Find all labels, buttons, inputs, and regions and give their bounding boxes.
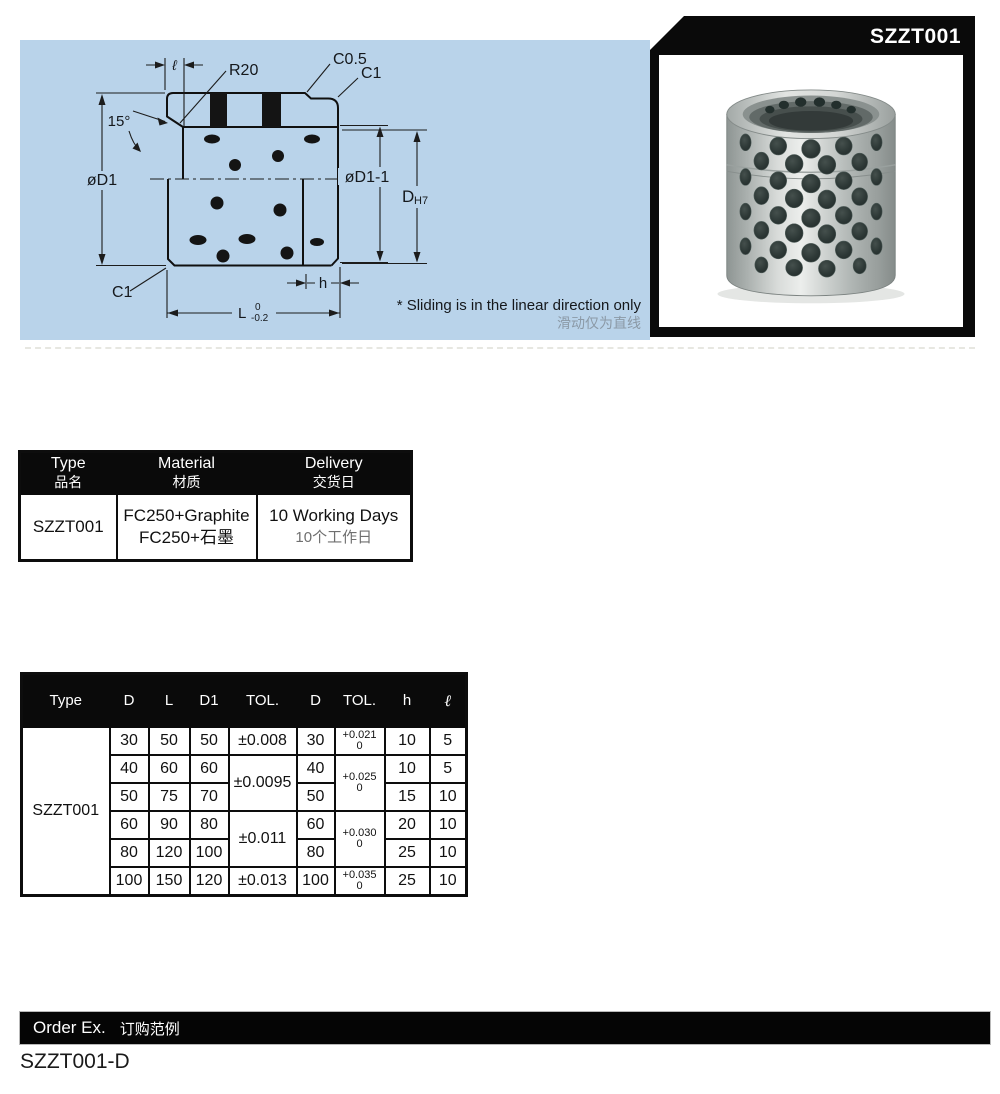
header-delivery-cn: 交货日 [258,473,411,492]
cell-d: 50 [110,783,149,811]
cell-l: 60 [149,755,190,783]
info-delivery-cell: 10 Working Days 10个工作日 [257,494,412,561]
cell-ell: 10 [430,811,467,839]
lower-body-outline [168,179,332,266]
tol2-lower: 0 [336,783,384,794]
product-code-title: SZZT001 [870,25,961,49]
cell-l: 75 [149,783,190,811]
cell-d2: 80 [297,839,335,867]
cell-l: 50 [149,727,190,755]
order-label-en: Order Ex. [33,1018,106,1038]
cell-h: 25 [385,839,430,867]
material-cn: FC250+石墨 [118,527,256,549]
flange-outline [167,93,338,127]
technical-drawing: øD1 ℓ R20 C0.5 C1 15° [20,40,650,340]
technical-drawing-panel: øD1 ℓ R20 C0.5 C1 15° [20,40,650,340]
cell-d2: 30 [297,727,335,755]
info-type-cell: SZZT001 [20,494,117,561]
dim-label-h: h [319,275,327,292]
cell-d2: 60 [297,811,335,839]
spec-header-tol1: TOL. [229,674,297,728]
product-photo [659,55,963,327]
keyway-bar [210,93,227,127]
order-label-cn: 订购范例 [120,1018,180,1039]
cell-h: 15 [385,783,430,811]
dim-label-angle: 15° [108,113,131,130]
bushing-photo-illustration [668,60,954,322]
header-material-cn: 材质 [118,473,256,492]
sliding-note-en: * Sliding is in the linear direction onl… [397,297,642,314]
cell-d: 80 [110,839,149,867]
dim-label-d1: øD1 [87,172,117,189]
cell-tol2: +0.030 0 [335,811,385,867]
tol2-lower: 0 [336,881,384,892]
dim-label-d-main: D [402,187,414,206]
dim-label-c1-top: C1 [361,65,382,82]
spec-header-ell: ℓ [430,674,467,728]
header-type-cn: 品名 [21,473,116,492]
cell-l: 150 [149,867,190,896]
spec-type-cell: SZZT001 [22,727,110,896]
spec-row: SZZT001 30 50 50 ±0.008 30 +0.021 0 10 5 [22,727,467,755]
info-table-row: SZZT001 FC250+Graphite FC250+石墨 10 Worki… [20,494,412,561]
cell-d1: 50 [190,727,229,755]
info-header-delivery: Delivery交货日 [257,452,412,495]
info-table: Type品名 Material材质 Delivery交货日 SZZT001 FC… [18,450,413,562]
cell-d: 100 [110,867,149,896]
cell-tol1: ±0.011 [229,811,297,867]
cell-d2: 40 [297,755,335,783]
header-material-en: Material [158,455,215,472]
cell-d2: 100 [297,867,335,896]
dim-label-r20: R20 [229,62,258,79]
spec-table-header-row: Type D L D1 TOL. D TOL. h ℓ [22,674,467,728]
dim-label-c1-bottom: C1 [112,284,133,301]
dim-label-d1-1: øD1-1 [345,169,390,186]
keyway-bar [262,93,281,127]
body-right-edge [332,127,339,266]
tol2-lower: 0 [336,741,384,752]
spec-header-d: D [110,674,149,728]
header-type-en: Type [51,455,86,472]
cell-h: 10 [385,727,430,755]
spec-header-tol2: TOL. [335,674,385,728]
cell-h: 20 [385,811,430,839]
cell-d1: 60 [190,755,229,783]
delivery-cn: 10个工作日 [258,527,411,549]
cell-tol1: ±0.013 [229,867,297,896]
spec-header-d1: D1 [190,674,229,728]
delivery-en: 10 Working Days [258,505,411,527]
cell-l: 120 [149,839,190,867]
header-delivery-en: Delivery [305,455,363,472]
dim-label-ell: ℓ [171,57,177,73]
cell-tol1: ±0.008 [229,727,297,755]
info-header-material: Material材质 [117,452,257,495]
cell-d1: 80 [190,811,229,839]
tol2-lower: 0 [336,839,384,850]
cell-l: 90 [149,811,190,839]
cell-d1: 70 [190,783,229,811]
cell-tol2: +0.021 0 [335,727,385,755]
cell-d: 30 [110,727,149,755]
cell-ell: 5 [430,755,467,783]
order-example-value: SZZT001-D [20,1050,130,1074]
cell-d: 40 [110,755,149,783]
dim-label-L-tol-lower: -0.2 [251,313,269,324]
spec-header-d2: D [297,674,335,728]
sliding-note-cn: 滑动仅为直线 [557,315,641,331]
info-material-cell: FC250+Graphite FC250+石墨 [117,494,257,561]
cell-tol1: ±0.0095 [229,755,297,811]
product-photo-panel: SZZT001 [650,16,975,337]
spec-header-h: h [385,674,430,728]
spec-header-type: Type [22,674,110,728]
dim-label-L: L [238,305,246,322]
cell-ell: 10 [430,867,467,896]
material-en: FC250+Graphite [118,505,256,527]
cell-d1: 120 [190,867,229,896]
info-header-type: Type品名 [20,452,117,495]
cell-ell: 5 [430,727,467,755]
dotted-separator [25,347,975,349]
cell-h: 10 [385,755,430,783]
cell-h: 25 [385,867,430,896]
cell-tol2: +0.025 0 [335,755,385,811]
dim-label-L-tol-upper: 0 [255,302,261,313]
cell-d1: 100 [190,839,229,867]
cell-tol2: +0.035 0 [335,867,385,896]
cell-ell: 10 [430,783,467,811]
order-example-bar: Order Ex. 订购范例 [20,1012,990,1044]
cell-d: 60 [110,811,149,839]
info-table-header-row: Type品名 Material材质 Delivery交货日 [20,452,412,495]
cell-d2: 50 [297,783,335,811]
spec-table: Type D L D1 TOL. D TOL. h ℓ SZZT001 30 5… [20,672,468,897]
spec-header-l: L [149,674,190,728]
dim-label-d-sub: H7 [414,195,428,207]
cell-ell: 10 [430,839,467,867]
